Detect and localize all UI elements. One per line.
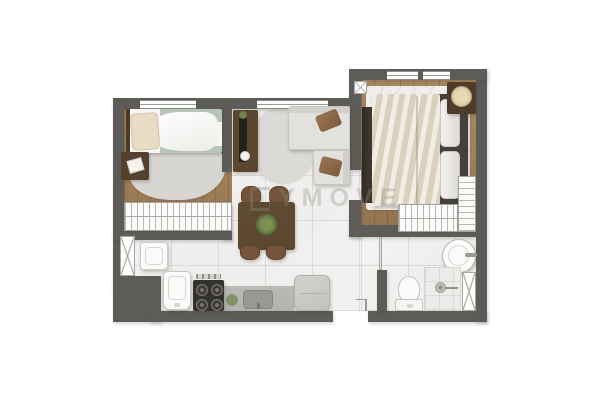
bed-pillow-bottom [440,151,460,199]
bed-duvet-fold [416,96,418,204]
wall-bottom-west [150,311,333,322]
console-plant [239,111,247,119]
toilet-flush-button [407,304,413,308]
wall-bedroom-small-right-upper [222,108,232,172]
dining-table-plant [256,214,277,235]
closet-master-bottom [398,204,458,232]
nightstand-lamp [451,86,472,107]
watermark: YMOVE [250,184,403,213]
burner-icon [211,284,223,296]
watermark-logo-icon [250,187,270,211]
washbasin-faucet [465,253,477,257]
refrigerator-inner [168,276,186,300]
utility-basin-inner [145,247,163,265]
entry-door-threshold [356,299,367,300]
counter-sink [243,290,273,309]
wall-right [476,69,487,322]
shower [424,267,461,311]
nightstand-small [121,152,149,180]
wall-top-right-block [349,69,487,80]
wardrobe-bedroom-small [124,202,232,231]
refrigerator-handle [174,303,180,307]
bathroom-door-leaf [379,237,382,270]
window-master-left [387,71,418,80]
single-bed [126,109,222,153]
single-bed-headboard [126,109,130,153]
wall-bath-left [377,270,387,311]
closet-master-right [458,176,476,232]
toilet-tank [395,299,423,311]
door-x-bathroom-right [462,272,476,311]
stove [193,280,224,311]
burner-icon [196,284,208,296]
column-marker-x [354,81,367,94]
toilet [395,276,423,311]
kitchen-plant [226,294,238,306]
utility-basin [140,242,168,270]
entry-door-leaf [365,299,367,311]
window-master-right [423,71,450,80]
kitchen-counter [224,286,294,311]
dining-chair-sw [240,245,260,260]
dining-chair-se [266,245,286,260]
nightstand-papers [126,157,144,174]
burner-icon [196,299,208,311]
tv-console [233,110,258,172]
nightstand-master [447,82,476,114]
shower-handle [445,287,458,289]
sofa-backrest-top [289,107,349,113]
stove-controls [196,274,221,279]
single-bed-pillow [130,112,161,151]
counter-faucet [257,303,260,309]
floor-plan-canvas: YMOVE [0,0,600,400]
appliance-seam [300,293,326,294]
wall-bottom-east [368,311,487,322]
burner-icon [211,299,223,311]
stove-burners [196,284,223,311]
sofa-backrest-right [343,151,349,184]
watermark-text: YMOVE [278,184,403,213]
console-dish [240,151,250,161]
door-x-left-wall [120,236,135,276]
refrigerator-white [163,271,191,310]
window-bedroom-small [140,100,196,109]
appliance-gray [294,275,330,311]
